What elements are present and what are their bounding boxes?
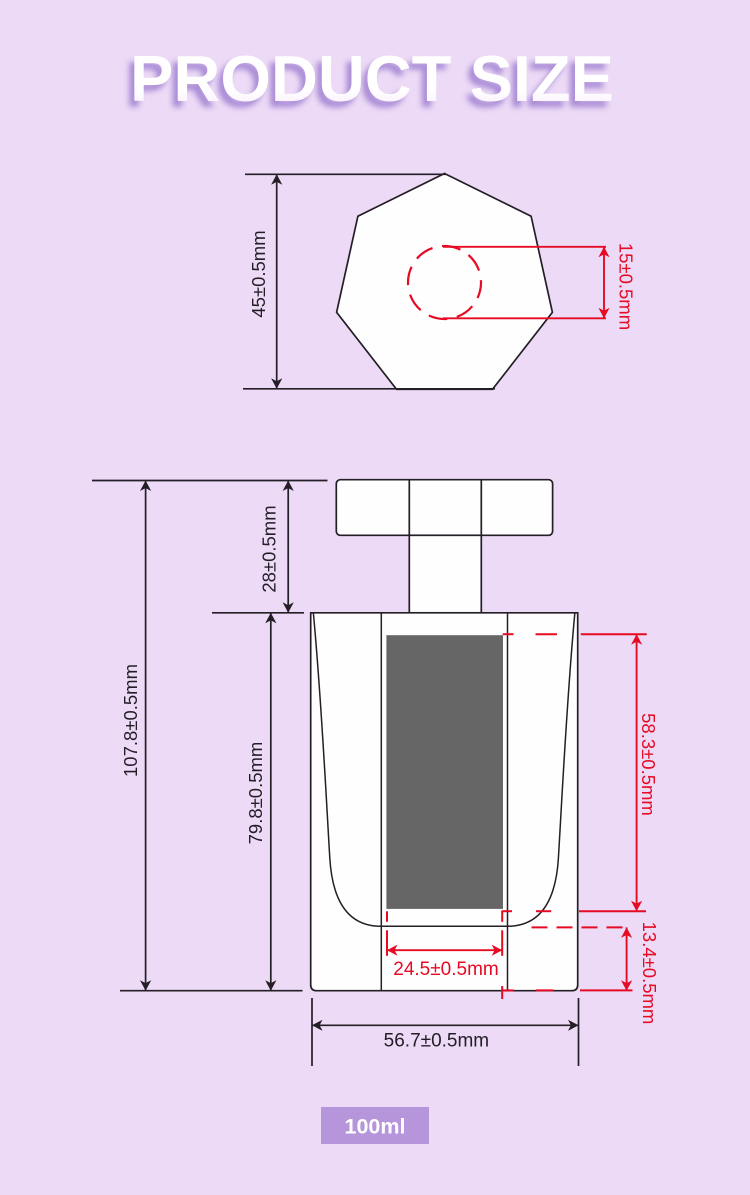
svg-text:58.3±0.5mm: 58.3±0.5mm: [638, 713, 659, 816]
svg-text:56.7±0.5mm: 56.7±0.5mm: [384, 1030, 489, 1051]
svg-text:100ml: 100ml: [345, 1115, 406, 1139]
svg-text:24.5±0.5mm: 24.5±0.5mm: [393, 959, 498, 980]
svg-text:15±0.5mm: 15±0.5mm: [616, 243, 637, 330]
svg-text:107.8±0.5mm: 107.8±0.5mm: [120, 664, 141, 777]
svg-text:45±0.5mm: 45±0.5mm: [248, 230, 269, 317]
svg-text:79.8±0.5mm: 79.8±0.5mm: [245, 742, 266, 845]
svg-text:13.4±0.5mm: 13.4±0.5mm: [639, 922, 660, 1025]
svg-text:28±0.5mm: 28±0.5mm: [259, 505, 280, 592]
